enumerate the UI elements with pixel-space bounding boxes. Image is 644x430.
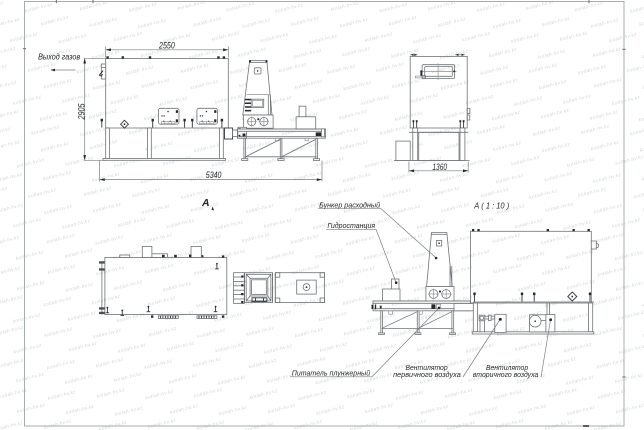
svg-text:Бункер расходный: Бункер расходный xyxy=(319,201,381,210)
svg-text:Гидростанция: Гидростанция xyxy=(327,221,375,230)
svg-text:Выход газов: Выход газов xyxy=(38,53,80,62)
svg-text:Питатель плунжерный: Питатель плунжерный xyxy=(292,369,371,378)
svg-text:2905: 2905 xyxy=(76,103,86,120)
svg-text:А: А xyxy=(201,197,210,209)
svg-text:вторичного воздуха: вторичного воздуха xyxy=(473,370,539,379)
svg-text:А ( 1 : 10 ): А ( 1 : 10 ) xyxy=(473,201,509,211)
svg-text:5340: 5340 xyxy=(206,170,222,180)
svg-text:первичного воздуха: первичного воздуха xyxy=(393,370,461,379)
svg-text:1360: 1360 xyxy=(432,162,447,172)
svg-text:2550: 2550 xyxy=(158,40,175,50)
